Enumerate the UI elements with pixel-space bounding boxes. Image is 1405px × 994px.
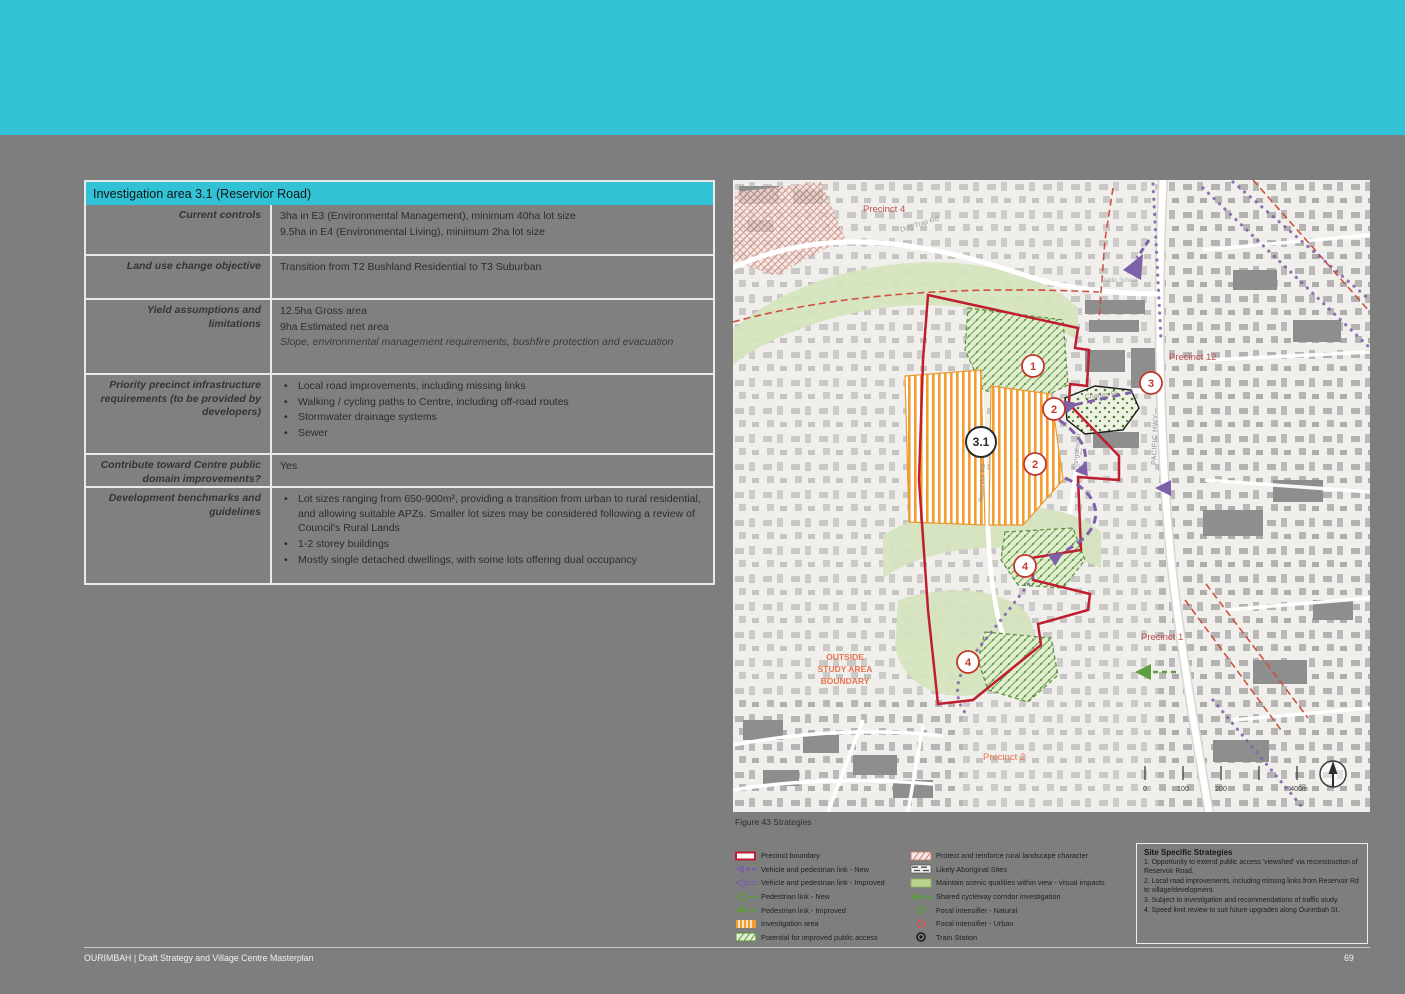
focal-intensifier-urban-icon (910, 919, 932, 929)
table-row: Yield assumptions and limitations 12.5ha… (86, 298, 713, 373)
marker-3-1: 3.1 (966, 427, 996, 457)
svg-text:0: 0 (1143, 786, 1147, 793)
vehicle-ped-link-improved-icon (735, 878, 757, 888)
value-line: 12.5ha Gross area (280, 304, 705, 319)
legend-item: Maintain scenic qualities within view - … (910, 876, 1140, 890)
strategy-item: 3. Subject to investigation and recommen… (1144, 897, 1360, 906)
outside-boundary-label: STUDY AREA (818, 664, 873, 674)
legend-label: Investigation area (761, 919, 819, 928)
legend-label: Focal intensifier - Urban (936, 919, 1013, 928)
svg-text:400m: 400m (1290, 786, 1308, 793)
table-row: Priority precinct infrastructure require… (86, 373, 713, 453)
aboriginal-sites-icon (910, 864, 932, 874)
bullet-item: Local road improvements, including missi… (280, 379, 705, 394)
cycleway-corridor-icon (910, 892, 932, 902)
legend-label: Vehicle and pedestrian link - New (761, 865, 869, 874)
legend-label: Potential for improved public access (761, 933, 878, 942)
focal-intensifier-natural-icon (910, 905, 932, 915)
bullet-item: Lot sizes ranging from 650-900m², provid… (280, 492, 705, 536)
legend-label: Focal intensifier - Natural (936, 906, 1017, 915)
bullet-item: Walking / cycling paths to Centre, inclu… (280, 395, 705, 410)
marker-4a: 4 (1014, 555, 1036, 577)
precinct-boundary-icon (735, 851, 757, 861)
legend-label: Precinct boundary (761, 851, 820, 860)
svg-text:100: 100 (1177, 786, 1189, 793)
vehicle-ped-link-new-icon (735, 864, 757, 874)
strategy-item: 1. Opportunity to extend public access '… (1144, 859, 1360, 877)
row-value: Yes (272, 455, 713, 486)
legend-item: Focal intensifier - Natural (910, 903, 1140, 917)
strategy-item: 4. Speed limit review to suit future upg… (1144, 907, 1360, 916)
legend-label: Train Station (936, 933, 977, 942)
footer-divider (84, 947, 1370, 948)
precinct-12-label: Precinct 12 (1169, 352, 1217, 363)
legend-label: Pedestrian link - Improved (761, 906, 846, 915)
public-school-label: Public School (1101, 278, 1137, 284)
outside-boundary-label: BOUNDARY (821, 676, 870, 686)
top-banner (0, 0, 1405, 135)
precinct-2-label: Precinct 2 (983, 752, 1025, 763)
row-value: 3ha in E3 (Environmental Management), mi… (272, 205, 713, 254)
legend-item: Focal intensifier - Urban (910, 917, 1140, 931)
value-note: Slope, environmental management requirem… (280, 335, 705, 350)
legend-item: Pedestrian link - New (735, 890, 903, 904)
legend-item: Vehicle and pedestrian link - New (735, 863, 903, 877)
strategies-map: 1 2 3 2 4 4 3.1 Precinct 4 Precinct 12 P… (733, 180, 1370, 812)
svg-text:2: 2 (1032, 459, 1038, 471)
row-label: Land use change objective (86, 256, 272, 298)
table-row: Contribute toward Centre public domain i… (86, 453, 713, 486)
legend-label: Likely Aboriginal Sites (936, 865, 1007, 874)
row-label: Contribute toward Centre public domain i… (86, 455, 272, 486)
scenic-quality-icon (910, 878, 932, 888)
legend-item: Vehicle and pedestrian link - Improved (735, 876, 903, 890)
value-line: 9.5ha in E4 (Environmental Living), mini… (280, 225, 705, 240)
legend-label: Shared cycleway corridor investigation (936, 892, 1061, 901)
table-row: Current controls 3ha in E3 (Environmenta… (86, 205, 713, 254)
legend-item: Train Station (910, 931, 1140, 945)
precinct-4-label: Precinct 4 (863, 204, 905, 215)
marker-1: 1 (1022, 355, 1044, 377)
svg-text:3.1: 3.1 (973, 435, 990, 449)
bullet-item: Mostly single detached dwellings, with s… (280, 553, 705, 568)
row-label: Yield assumptions and limitations (86, 300, 272, 373)
legend-item: Pedestrian link - Improved (735, 903, 903, 917)
legend-label: Pedestrian link - New (761, 892, 830, 901)
row-label: Current controls (86, 205, 272, 254)
investigation-area-table: Investigation area 3.1 (Reservior Road) … (84, 180, 715, 585)
marker-2a: 2 (1043, 398, 1065, 420)
svg-text:3: 3 (1148, 378, 1154, 390)
row-value: Transition from T2 Bushland Residential … (272, 256, 713, 298)
marker-3: 3 (1140, 372, 1162, 394)
rural-character-icon (910, 851, 932, 861)
map-svg: 1 2 3 2 4 4 3.1 Precinct 4 Precinct 12 P… (733, 180, 1370, 812)
footer-page-number: 69 (1344, 953, 1354, 963)
table-row: Development benchmarks and guidelines Lo… (86, 486, 713, 583)
figure-caption: Figure 43 Strategies (735, 817, 812, 827)
investigation-area-icon (735, 919, 757, 929)
value-line: 3ha in E3 (Environmental Management), mi… (280, 209, 705, 224)
svg-text:4: 4 (965, 657, 972, 669)
pedestrian-link-new-icon (735, 892, 757, 902)
svg-text:4: 4 (1022, 561, 1029, 573)
svg-text:1: 1 (1030, 361, 1036, 373)
table-row: Land use change objective Transition fro… (86, 254, 713, 298)
outside-boundary-label: OUTSIDE (826, 652, 864, 662)
row-value: Local road improvements, including missi… (272, 375, 713, 453)
bullet-item: Stormwater drainage systems (280, 410, 705, 425)
improved-public-access-icon (735, 932, 757, 942)
legend-item: Protect and reinforce rural landscape ch… (910, 849, 1140, 863)
row-value: 12.5ha Gross area 9ha Estimated net area… (272, 300, 713, 373)
row-label: Development benchmarks and guidelines (86, 488, 272, 583)
footer-document-title: OURIMBAH | Draft Strategy and Village Ce… (84, 953, 313, 963)
row-value: Lot sizes ranging from 650-900m², provid… (272, 488, 713, 583)
value-line: Yes (280, 459, 705, 474)
pedestrian-link-improved-icon (735, 905, 757, 915)
table-title: Investigation area 3.1 (Reservior Road) (86, 182, 713, 205)
row-label: Priority precinct infrastructure require… (86, 375, 272, 453)
svg-text:2: 2 (1051, 404, 1057, 416)
legend-item: Investigation area (735, 917, 903, 931)
legend-item: Precinct boundary (735, 849, 903, 863)
train-station-icon (910, 932, 932, 942)
legend-label: Vehicle and pedestrian link - Improved (761, 878, 885, 887)
legend-label: Maintain scenic qualities within view - … (936, 878, 1105, 887)
value-line: Transition from T2 Bushland Residential … (280, 260, 705, 275)
marker-2b: 2 (1024, 453, 1046, 475)
site-specific-strategies-box: Site Specific Strategies 1. Opportunity … (1136, 843, 1368, 944)
strategy-item: 2. Local road improvements, including mi… (1144, 878, 1360, 896)
legend-item: Shared cycleway corridor investigation (910, 890, 1140, 904)
legend-label: Protect and reinforce rural landscape ch… (936, 851, 1088, 860)
strategies-title: Site Specific Strategies (1144, 848, 1360, 857)
legend-item: Likely Aboriginal Sites (910, 863, 1140, 877)
legend-item: Potential for improved public access (735, 931, 903, 945)
svg-text:200: 200 (1215, 786, 1227, 793)
bullet-item: 1-2 storey buildings (280, 537, 705, 552)
bullet-item: Sewer (280, 426, 705, 441)
precinct-1-label: Precinct 1 (1141, 632, 1183, 643)
north-arrow-icon (1320, 761, 1346, 787)
value-line: 9ha Estimated net area (280, 320, 705, 335)
marker-4b: 4 (957, 651, 979, 673)
